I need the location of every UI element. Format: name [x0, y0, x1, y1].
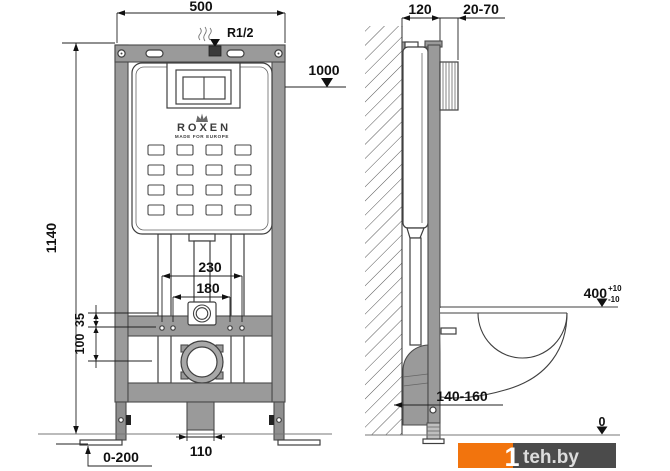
brand-tagline: MADE FOR EUROPE [175, 134, 229, 139]
top-bar-slot-left [146, 50, 163, 57]
dim-35-label: 35 [73, 313, 87, 327]
dim-230-label: 230 [198, 259, 222, 275]
level-triangle-icon [597, 427, 608, 435]
dim-1140-label: 1140 [43, 223, 59, 254]
drain-opening [187, 347, 217, 377]
pad-cell [235, 205, 251, 215]
supply-connector [209, 46, 221, 56]
dim-120-label: 120 [408, 1, 432, 17]
drain-elbow [403, 345, 428, 425]
dim-width-500: 500 [117, 0, 285, 43]
level-triangle-icon [597, 299, 608, 308]
tol-minus-label: -10 [608, 295, 620, 304]
pad-cell [148, 185, 164, 195]
leg-clamp-left [126, 415, 131, 425]
arrowhead [432, 15, 440, 21]
dim-floor-zero: 0 [597, 415, 608, 435]
mounting-bolt-hole [171, 326, 175, 330]
dim-100-label: 100 [73, 334, 87, 355]
arrowhead [73, 43, 79, 51]
level-triangle-icon [321, 78, 333, 88]
water-wave-icon [209, 28, 212, 40]
arrowhead [214, 434, 222, 440]
pad-cell [148, 205, 164, 215]
frame-rail-right [272, 45, 285, 402]
frame-bottom-bar [128, 383, 272, 402]
dim-height-1140: 1140 [43, 43, 115, 434]
ref-1000-label: 1000 [308, 62, 339, 78]
dim-140-160-label: 140-160 [436, 388, 488, 404]
drain-fitting [181, 341, 223, 383]
dim-500-label: 500 [189, 0, 213, 14]
pad-cell [206, 185, 222, 195]
toilet-bowl-profile [440, 307, 618, 398]
water-wave-icon [204, 27, 207, 41]
tol-plus-label: +10 [608, 284, 622, 293]
technical-drawing: 500 1140 R1/2 [0, 0, 670, 471]
ref-line-1000: 1000 [285, 62, 346, 88]
cistern-side-profile [403, 47, 428, 228]
leg-clamp-right [269, 415, 274, 425]
arrowhead [173, 294, 181, 300]
pad-cell [235, 185, 251, 195]
pad-cell [177, 205, 193, 215]
pad-cell [206, 205, 222, 215]
outlet-bolt [430, 407, 436, 413]
center-bracket [187, 402, 214, 430]
dim-leg-adjust: 0-200 [56, 444, 152, 466]
arrowhead [93, 313, 98, 319]
brand-name: ROXEN [177, 122, 231, 134]
pad-cell [177, 145, 193, 155]
side-foot [423, 423, 444, 444]
pad-cell [177, 185, 193, 195]
front-view: 500 1140 R1/2 [38, 0, 346, 466]
mounting-stud [441, 328, 456, 334]
water-wave-icon [199, 28, 202, 40]
dim-bowl-height-400: 400 +10 -10 [584, 284, 622, 307]
pad-cell [235, 145, 251, 155]
dim-0-200-label: 0-200 [103, 449, 139, 465]
arrowhead [93, 321, 98, 327]
flush-pipe-side [410, 238, 421, 345]
pad-cell [177, 165, 193, 175]
foot-base-plate [423, 439, 444, 444]
pad-cell [235, 165, 251, 175]
watermark-one: 1 [504, 442, 519, 471]
mounting-bolt-hole [160, 326, 164, 330]
mounting-bolt-hole [240, 326, 244, 330]
frame-rail-left [115, 45, 128, 402]
arrowhead [93, 355, 98, 361]
mounting-bolt-hole [228, 326, 232, 330]
pad-cell [148, 145, 164, 155]
foot-plate-right [278, 440, 320, 445]
arrowhead [117, 10, 125, 16]
arrowhead [85, 446, 91, 454]
dim-110-label: 110 [190, 443, 213, 459]
wall-hatch [365, 26, 402, 435]
frame-top-bar [115, 45, 285, 62]
flush-plate [167, 63, 240, 108]
arrowhead [179, 434, 187, 440]
finish-layer-block [440, 62, 458, 110]
dim-180-label: 180 [196, 280, 220, 296]
top-bar-slot-right [227, 50, 244, 57]
leg-screw-right [277, 418, 282, 423]
leg-screw-left [119, 418, 124, 423]
flush-pipe-collar [189, 234, 215, 241]
side-view: 120 20-70 [365, 1, 622, 444]
arrowhead [277, 10, 285, 16]
tank-funnel [407, 228, 424, 238]
pad-cell [148, 165, 164, 175]
arrowhead [93, 327, 98, 333]
corner-screw-dot [278, 53, 280, 55]
dim-20-70-label: 20-70 [463, 1, 499, 17]
arrowhead [73, 426, 79, 434]
supply-label: R1/2 [227, 26, 253, 40]
arrowhead [222, 294, 230, 300]
installation-frame-drawing: 500 1140 R1/2 [0, 0, 670, 471]
frame-bar-side [428, 45, 440, 423]
pad-cell [206, 145, 222, 155]
pad-cell [206, 165, 222, 175]
inner-upright-left [158, 234, 171, 383]
watermark-logo: 1 teh.by [458, 442, 616, 471]
watermark-site: teh.by [523, 447, 579, 468]
corner-screw-dot [121, 53, 123, 55]
